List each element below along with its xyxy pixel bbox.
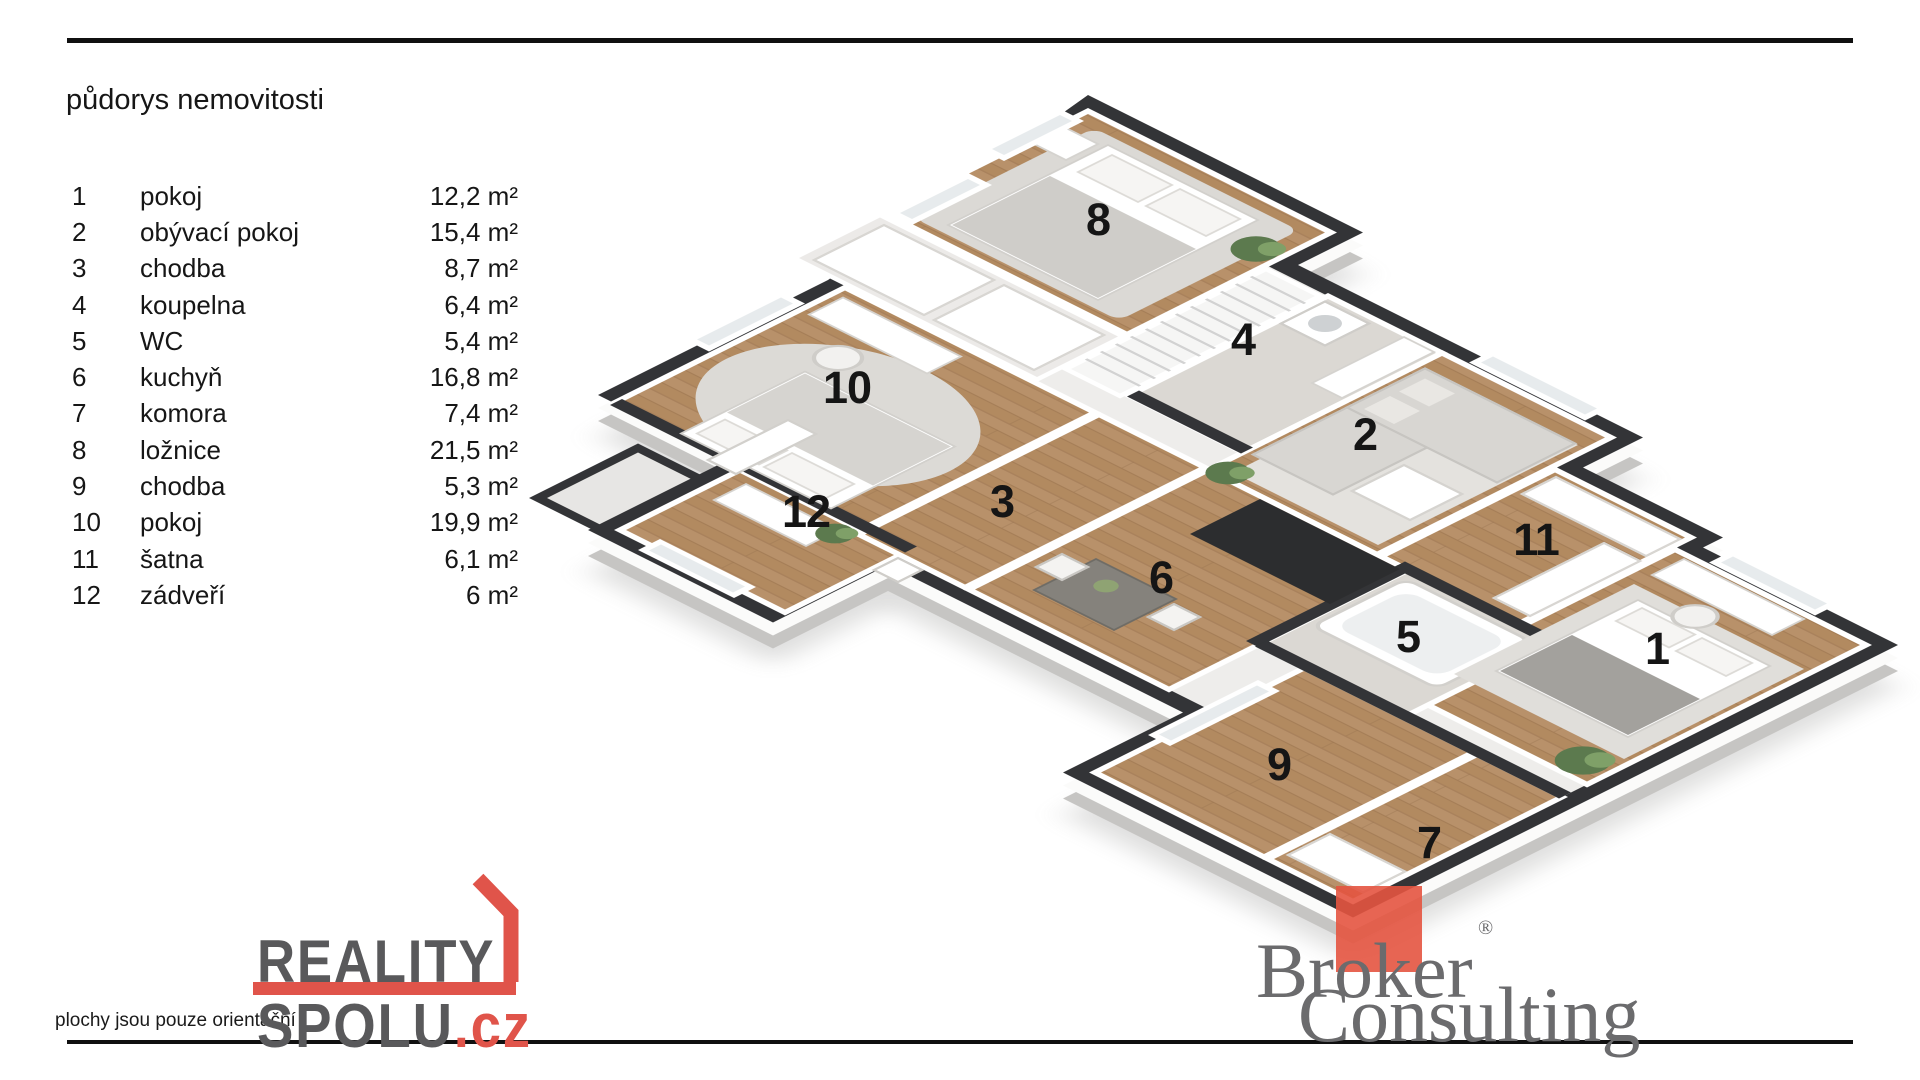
plan-room-label-11: 11 xyxy=(1513,514,1559,566)
plan-room-label-6: 6 xyxy=(1149,552,1173,604)
flyer-page: půdorys nemovitosti 1pokoj12,2 m² 2obýva… xyxy=(0,0,1920,1080)
isometric-plan xyxy=(356,95,1920,960)
plan-room-label-12: 12 xyxy=(782,486,830,538)
realityspolu-word-reality: REALITY xyxy=(257,932,495,992)
plan-room-label-4: 4 xyxy=(1231,314,1255,366)
plan-room-label-10: 10 xyxy=(823,362,871,414)
plan-room-label-9: 9 xyxy=(1267,739,1291,791)
plan-room-label-8: 8 xyxy=(1086,194,1110,246)
plan-room-label-1: 1 xyxy=(1645,623,1669,675)
tld-text: .cz xyxy=(454,992,532,1061)
plan-room-label-7: 7 xyxy=(1417,817,1441,869)
plan-room-label-2: 2 xyxy=(1353,409,1377,461)
registered-mark-icon: ® xyxy=(1478,918,1493,938)
realityspolu-word-spolu: SPOLU.cz xyxy=(257,996,532,1058)
spolu-text: SPOLU xyxy=(257,992,454,1061)
plan-room-label-5: 5 xyxy=(1396,611,1420,663)
consulting-word: Consulting xyxy=(1298,976,1640,1054)
plan-room-label-3: 3 xyxy=(990,476,1014,528)
